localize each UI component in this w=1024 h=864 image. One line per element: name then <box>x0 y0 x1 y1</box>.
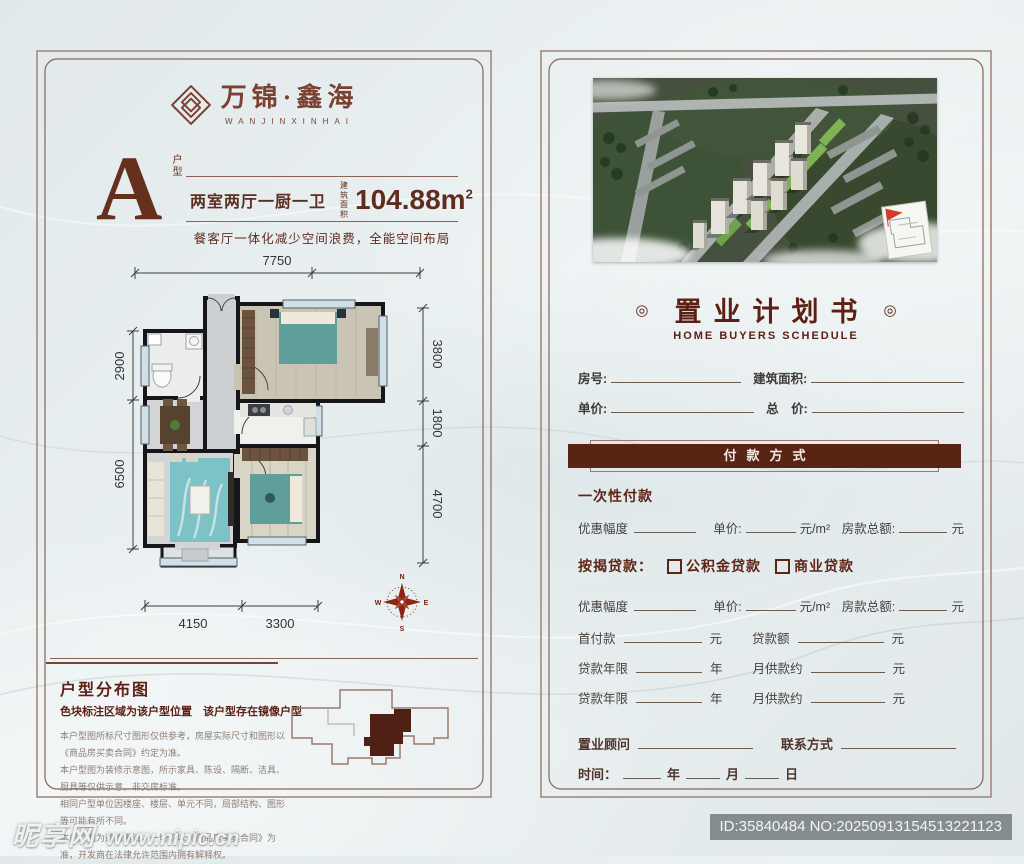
logo-latin: WANJINXINHAI <box>225 117 354 126</box>
unit-rooms: 两室两厅一厨一卫 <box>190 188 326 212</box>
distribution-subtitle: 色块标注区域为该户型位置 该户型存在镜像户型 <box>60 703 302 719</box>
unit-tagline: 餐客厅一体化减少空间浪费，全能空间布局 <box>186 228 458 247</box>
loan-amount-field <box>798 630 884 643</box>
banner-text: 付款方式 <box>568 444 961 468</box>
loan-years-label: 贷款年限 <box>578 688 628 707</box>
per-m2-unit: 元/m² <box>800 518 831 537</box>
total-price-label: 总 价: <box>766 398 808 417</box>
highlighted-unit-block <box>364 709 411 756</box>
rule-bottom <box>186 221 458 222</box>
watermark-site-url: www.nipic.cn <box>106 827 239 851</box>
unit-type-tag: 户型 <box>168 154 183 178</box>
compass: N E S W <box>375 574 429 633</box>
day-field <box>745 766 779 779</box>
biz-loan-checkbox <box>775 559 790 574</box>
floor-plan: 7750 2900 6500 3800 1800 4700 4150 3300 <box>90 246 470 646</box>
per-m2-unit: 元/m² <box>800 596 831 615</box>
day-label: 日 <box>785 764 798 783</box>
time-label: 时间： <box>578 764 617 783</box>
info-row-1: 房号: 建筑面积: <box>578 368 964 387</box>
total-amount-field <box>899 520 947 533</box>
contact-field <box>841 736 956 749</box>
schedule-title-row: ◎ 置业计划书 ◎ <box>540 290 992 329</box>
loan-amount-label: 贷款额 <box>752 628 790 647</box>
mortgage-row-2: 首付款 元 贷款额 元 <box>578 628 964 647</box>
discount-field <box>634 598 696 611</box>
year-field <box>623 766 661 779</box>
total-amount-label: 房款总额: <box>842 596 895 615</box>
watermark-site-name: 昵享网 <box>12 816 96 853</box>
buyers-schedule-page: ◎ 置业计划书 ◎ HOME BUYERS SCHEDULE 房号: 建筑面积:… <box>540 50 992 798</box>
unit-info-block: 两室两厅一厨一卫 建筑 面积 104.88m2 餐客厅一体化减少空间浪费，全能空… <box>186 176 458 247</box>
year-label: 年 <box>667 764 680 783</box>
info-row-2: 单价: 总 价: <box>578 398 964 417</box>
image-id-badge: ID:35840484 NO:20250913154513221123 <box>710 814 1012 840</box>
note-line: 本户型图为装修示意图，所示家具、陈设、隔断、洁具、厨具等仅供示意，非交房标准。 <box>60 762 290 796</box>
unitprice-label: 单价: <box>713 518 741 537</box>
total-amount-label: 房款总额: <box>842 518 895 537</box>
fund-loan-label: 公积金贷款 <box>686 556 761 576</box>
consultant-label: 置业顾问 <box>578 734 630 753</box>
total-price-field <box>812 400 964 413</box>
discount-label: 优惠幅度 <box>578 518 628 537</box>
dim-right-top: 3800 <box>430 340 445 369</box>
biz-loan-label: 商业贷款 <box>794 556 854 576</box>
aerial-rendering <box>593 78 937 262</box>
unit-type-letter: A <box>96 142 162 234</box>
discount-field <box>634 520 696 533</box>
compass-e: E <box>424 600 429 607</box>
loan-years-label: 贷款年限 <box>578 658 628 677</box>
mortgage-row-4: 贷款年限 年 月供款约 元 <box>578 688 964 707</box>
area-value: 104.88m2 <box>355 186 473 214</box>
unitprice-field <box>746 520 796 533</box>
fund-loan-checkbox <box>667 559 682 574</box>
date-row: 时间： 年 月 日 <box>578 764 964 783</box>
unit-price-field <box>611 400 754 413</box>
note-line: 本户型图所标尺寸图形仅供参考，房屋实际尺寸和图形以《商品房买卖合同》约定为准。 <box>60 728 290 762</box>
consultant-row: 置业顾问 联系方式 <box>578 734 964 753</box>
area-label: 建筑 面积 <box>340 181 348 219</box>
one-time-row: 优惠幅度 单价: 元/m² 房款总额: 元 <box>578 518 964 537</box>
logo-name: 万锦·鑫海 <box>221 84 359 113</box>
dim-left-top: 2900 <box>112 352 127 381</box>
dim-right-mid: 1800 <box>430 409 445 438</box>
monthly-payment-label: 月供款约 <box>753 688 803 707</box>
build-area-field <box>811 370 964 383</box>
site-watermark: 昵享网 www.nipic.cn <box>12 816 239 853</box>
dim-bottom-left: 4150 <box>179 616 208 631</box>
total-amount-field <box>899 598 947 611</box>
title-deco-right: ◎ <box>884 301 897 319</box>
down-payment-field <box>624 630 702 643</box>
payment-method-banner: 付款方式 <box>568 444 961 468</box>
build-area-label: 建筑面积: <box>753 368 807 387</box>
room-number-label: 房号: <box>578 368 607 387</box>
mortgage-row-3: 贷款年限 年 月供款约 元 <box>578 658 964 677</box>
dim-top: 7750 <box>263 253 292 268</box>
unit-price-label: 单价: <box>578 398 607 417</box>
contact-label: 联系方式 <box>781 734 833 753</box>
yuan-unit: 元 <box>951 518 964 537</box>
siteplan-inset <box>882 201 933 259</box>
one-time-payment-heading: 一次性付款 <box>578 486 653 506</box>
section-divider-line <box>50 658 478 659</box>
loan-years-field <box>636 660 702 673</box>
title-deco-left: ◎ <box>635 301 648 319</box>
compass-s: S <box>400 626 405 633</box>
year-unit: 年 <box>710 658 723 677</box>
year-unit: 年 <box>710 688 723 707</box>
yuan-unit: 元 <box>893 658 906 677</box>
dim-left-bottom: 6500 <box>112 460 127 489</box>
brand-logo: 万锦·鑫海 WANJINXINHAI <box>36 84 492 126</box>
floorplan-page: 万锦·鑫海 WANJINXINHAI A 户型 两室两厅一厨一卫 建筑 面积 1… <box>36 50 492 798</box>
mortgage-row-1: 优惠幅度 单价: 元/m² 房款总额: 元 <box>578 596 964 615</box>
mortgage-heading: 按揭贷款： 公积金贷款 商业贷款 <box>578 556 854 576</box>
mortgage-label: 按揭贷款： <box>578 556 653 576</box>
monthly-payment-field <box>811 690 885 703</box>
unitprice-label: 单价: <box>713 596 741 615</box>
month-field <box>686 766 720 779</box>
building-footprint-map <box>284 682 462 780</box>
section-divider-accent <box>46 662 278 664</box>
discount-label: 优惠幅度 <box>578 596 628 615</box>
dim-right-bottom: 4700 <box>430 490 445 519</box>
schedule-subtitle: HOME BUYERS SCHEDULE <box>540 330 992 342</box>
yuan-unit: 元 <box>710 628 723 647</box>
yuan-unit: 元 <box>951 596 964 615</box>
dim-bottom-right: 3300 <box>266 616 295 631</box>
logo-knot-icon <box>170 84 212 126</box>
loan-years-field <box>636 690 702 703</box>
compass-n: N <box>399 574 404 581</box>
yuan-unit: 元 <box>893 688 906 707</box>
down-payment-label: 首付款 <box>578 628 616 647</box>
consultant-field <box>638 736 753 749</box>
monthly-payment-label: 月供款约 <box>753 658 803 677</box>
distribution-title: 户型分布图 <box>60 676 150 700</box>
schedule-title: 置业计划书 <box>663 290 870 329</box>
yuan-unit: 元 <box>892 628 905 647</box>
monthly-payment-field <box>811 660 885 673</box>
compass-w: W <box>375 600 382 607</box>
month-label: 月 <box>726 764 739 783</box>
room-number-field <box>611 370 741 383</box>
unitprice-field <box>746 598 796 611</box>
